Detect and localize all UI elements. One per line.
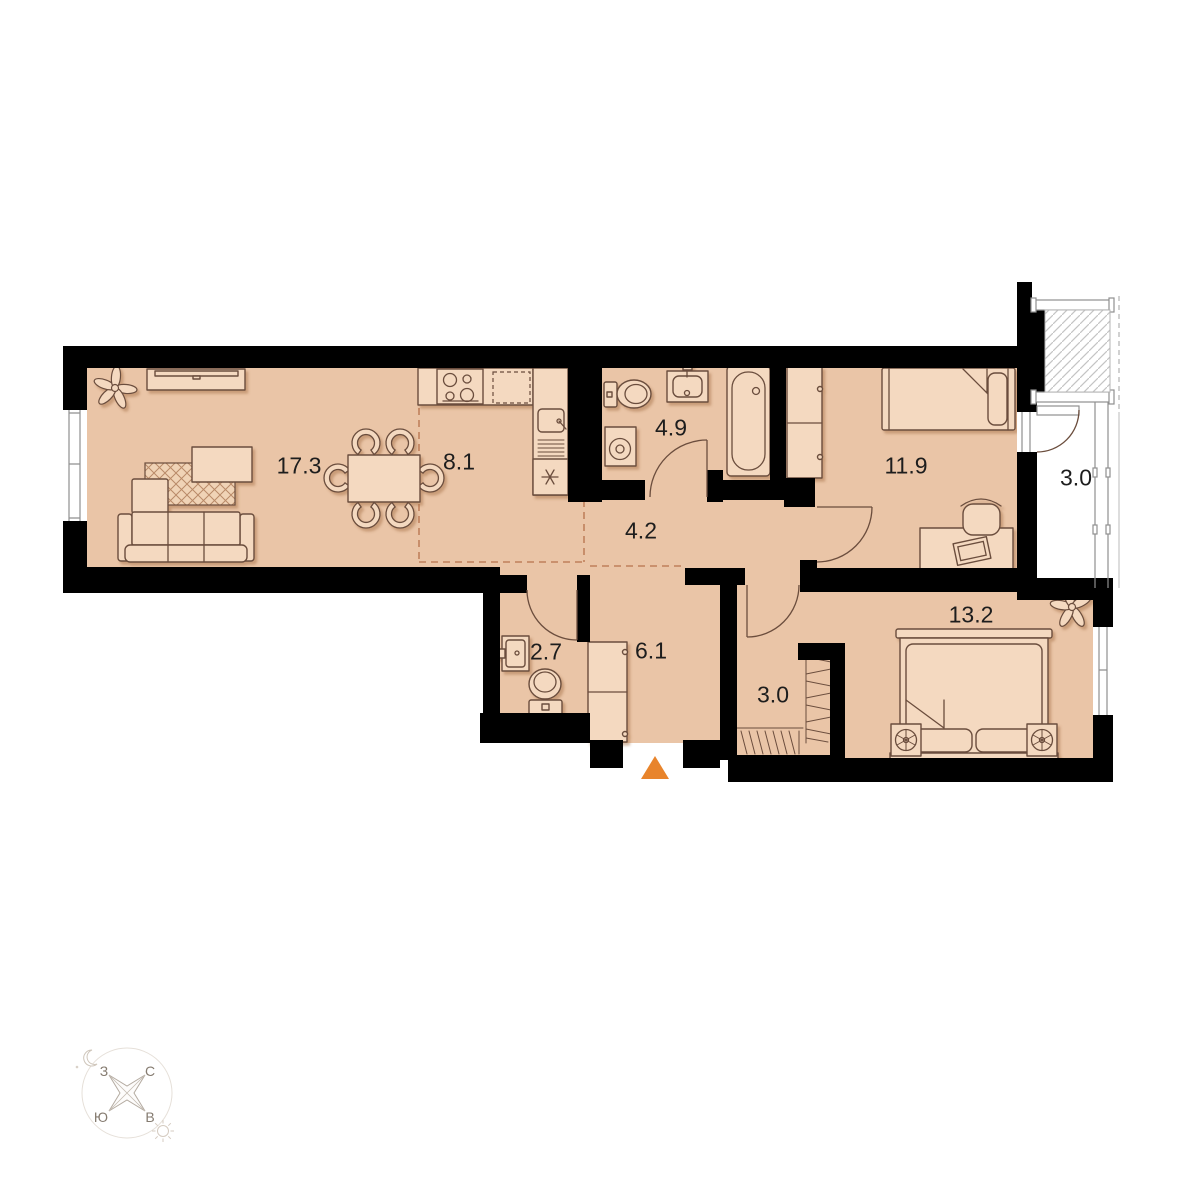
bathroom-sink: [667, 365, 708, 402]
entry-hall-area-label: 6.1: [635, 640, 667, 663]
refrigerator: [533, 459, 568, 495]
kitchen-area-label: 8.1: [443, 451, 475, 474]
nightstand: [891, 724, 921, 756]
toilet: [604, 380, 651, 408]
living-room-window: [63, 410, 87, 521]
bedroom-1-area-label: 11.9: [884, 455, 927, 478]
hallway-area-label: 4.2: [625, 520, 657, 543]
bedroom-2-area-label: 13.2: [949, 604, 994, 627]
tv-console: [147, 369, 245, 390]
wardrobe-cabinet: [787, 367, 823, 478]
compass-west-label: З: [100, 1064, 108, 1078]
washing-machine: [605, 427, 636, 466]
compass-rose: [76, 1048, 174, 1142]
moon-icon: [76, 1050, 97, 1068]
stove: [437, 369, 483, 404]
wc-toilet: [529, 669, 562, 716]
hall-wardrobe: [588, 642, 628, 742]
balcony-area-label: 3.0: [1060, 467, 1092, 490]
single-bed: [882, 368, 1015, 430]
compass-north-label: С: [145, 1064, 155, 1078]
balcony-door-glazing: [1017, 412, 1037, 452]
bedroom-2-window: [1093, 627, 1113, 715]
floor-plan-drawing: [0, 0, 1200, 1200]
balcony-door: [1037, 406, 1079, 452]
wardrobe-area-label: 3.0: [757, 684, 789, 707]
sun-icon: [152, 1120, 174, 1142]
bathtub: [727, 366, 770, 476]
living-room-area-label: 17.3: [277, 455, 322, 478]
floor-plan-page: 17.3 8.1 4.9 4.2 11.9 3.0 13.2 2.7 6.1 3…: [0, 0, 1200, 1200]
bathroom-area-label: 4.9: [655, 417, 687, 440]
desk: [920, 528, 1013, 572]
wc-area-label: 2.7: [530, 641, 562, 664]
entrance-marker: [641, 756, 669, 779]
coffee-table: [192, 447, 252, 482]
nightstand: [1027, 724, 1057, 756]
compass-south-label: Ю: [94, 1110, 108, 1124]
compass-east-label: В: [145, 1110, 154, 1124]
wc-sink: [497, 636, 529, 671]
